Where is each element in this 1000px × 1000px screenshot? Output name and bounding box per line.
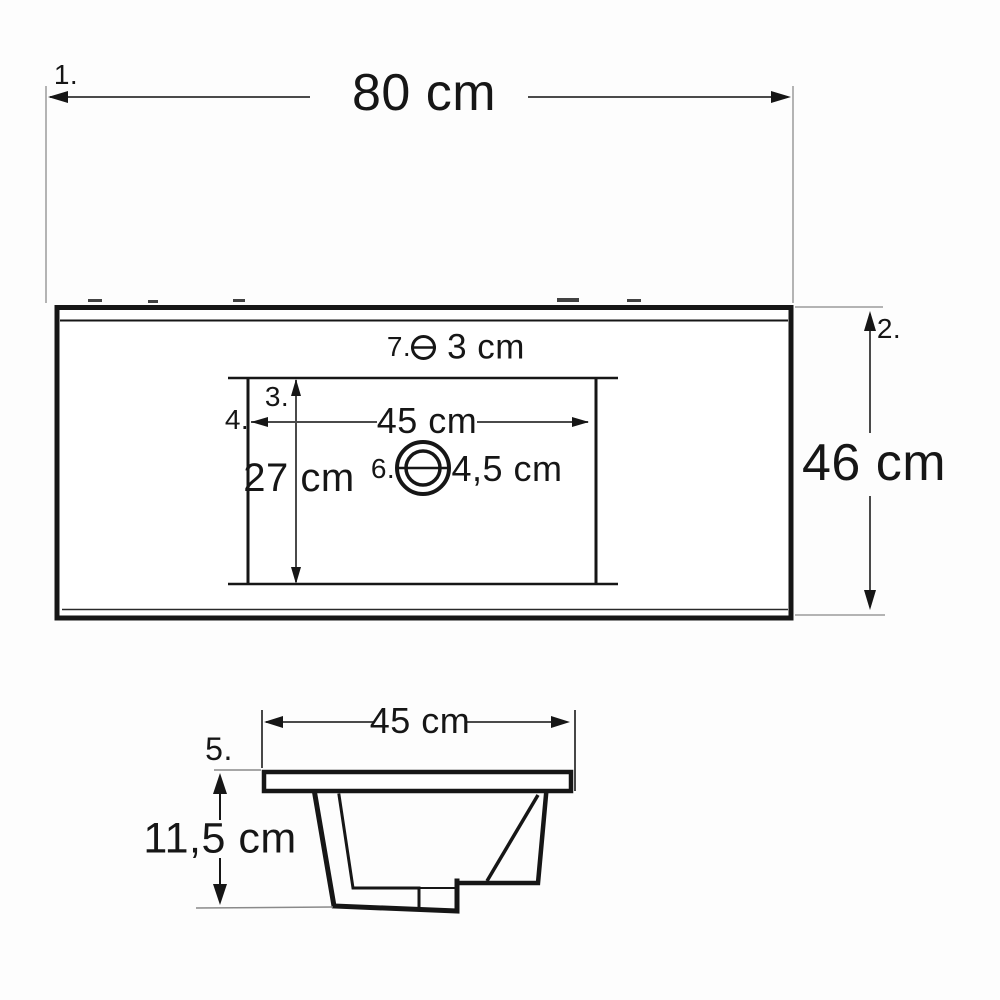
basin-outline	[57, 308, 791, 619]
bowl-inner-right	[487, 795, 538, 881]
arrow-up-icon	[213, 773, 227, 794]
arrow-right-icon	[771, 91, 791, 103]
ref-4-label: 4.	[225, 406, 249, 434]
washbasin-dimension-diagram: 1. 80 cm 2. 46 cm 7. 3 cm 3. 27 cm 4. 45…	[0, 0, 1000, 1000]
ref-1-label: 1.	[54, 61, 78, 89]
dim-46cm-label: 46 cm	[802, 437, 946, 489]
bowl-inner-left	[339, 795, 419, 909]
dim-80cm-label: 80 cm	[352, 67, 496, 119]
dim-27cm-label: 27 cm	[243, 458, 354, 498]
ref-2-label: 2.	[877, 315, 901, 343]
top-view-drawing	[57, 298, 791, 618]
ref-7-label: 7.	[387, 333, 411, 361]
rim-outline	[264, 772, 571, 791]
ref-5-label: 5.	[205, 733, 233, 765]
arrow-down-icon	[213, 884, 227, 905]
dim-3cm-label: 3 cm	[447, 330, 525, 365]
drain-icon	[397, 442, 449, 494]
dim-45cm-section-label: 45 cm	[370, 703, 471, 739]
dim-115cm-label: 11,5 cm	[143, 818, 296, 861]
arrow-right-icon	[551, 716, 570, 728]
arrow-up-icon	[864, 311, 876, 331]
bowl-outer-left	[315, 795, 457, 911]
ref-3-label: 3.	[265, 383, 289, 411]
bowl-outer-right	[457, 795, 546, 883]
section-view-drawing	[264, 772, 571, 911]
ref-6-label: 6.	[371, 455, 395, 483]
dim-45mm-drain-label: 4,5 cm	[451, 451, 562, 487]
scan-artifacts	[88, 298, 641, 303]
dim-45cm-top-label: 45 cm	[377, 403, 478, 439]
arrow-down-icon	[864, 590, 876, 610]
arrow-left-icon	[48, 91, 68, 103]
arrow-left-icon	[264, 716, 283, 728]
